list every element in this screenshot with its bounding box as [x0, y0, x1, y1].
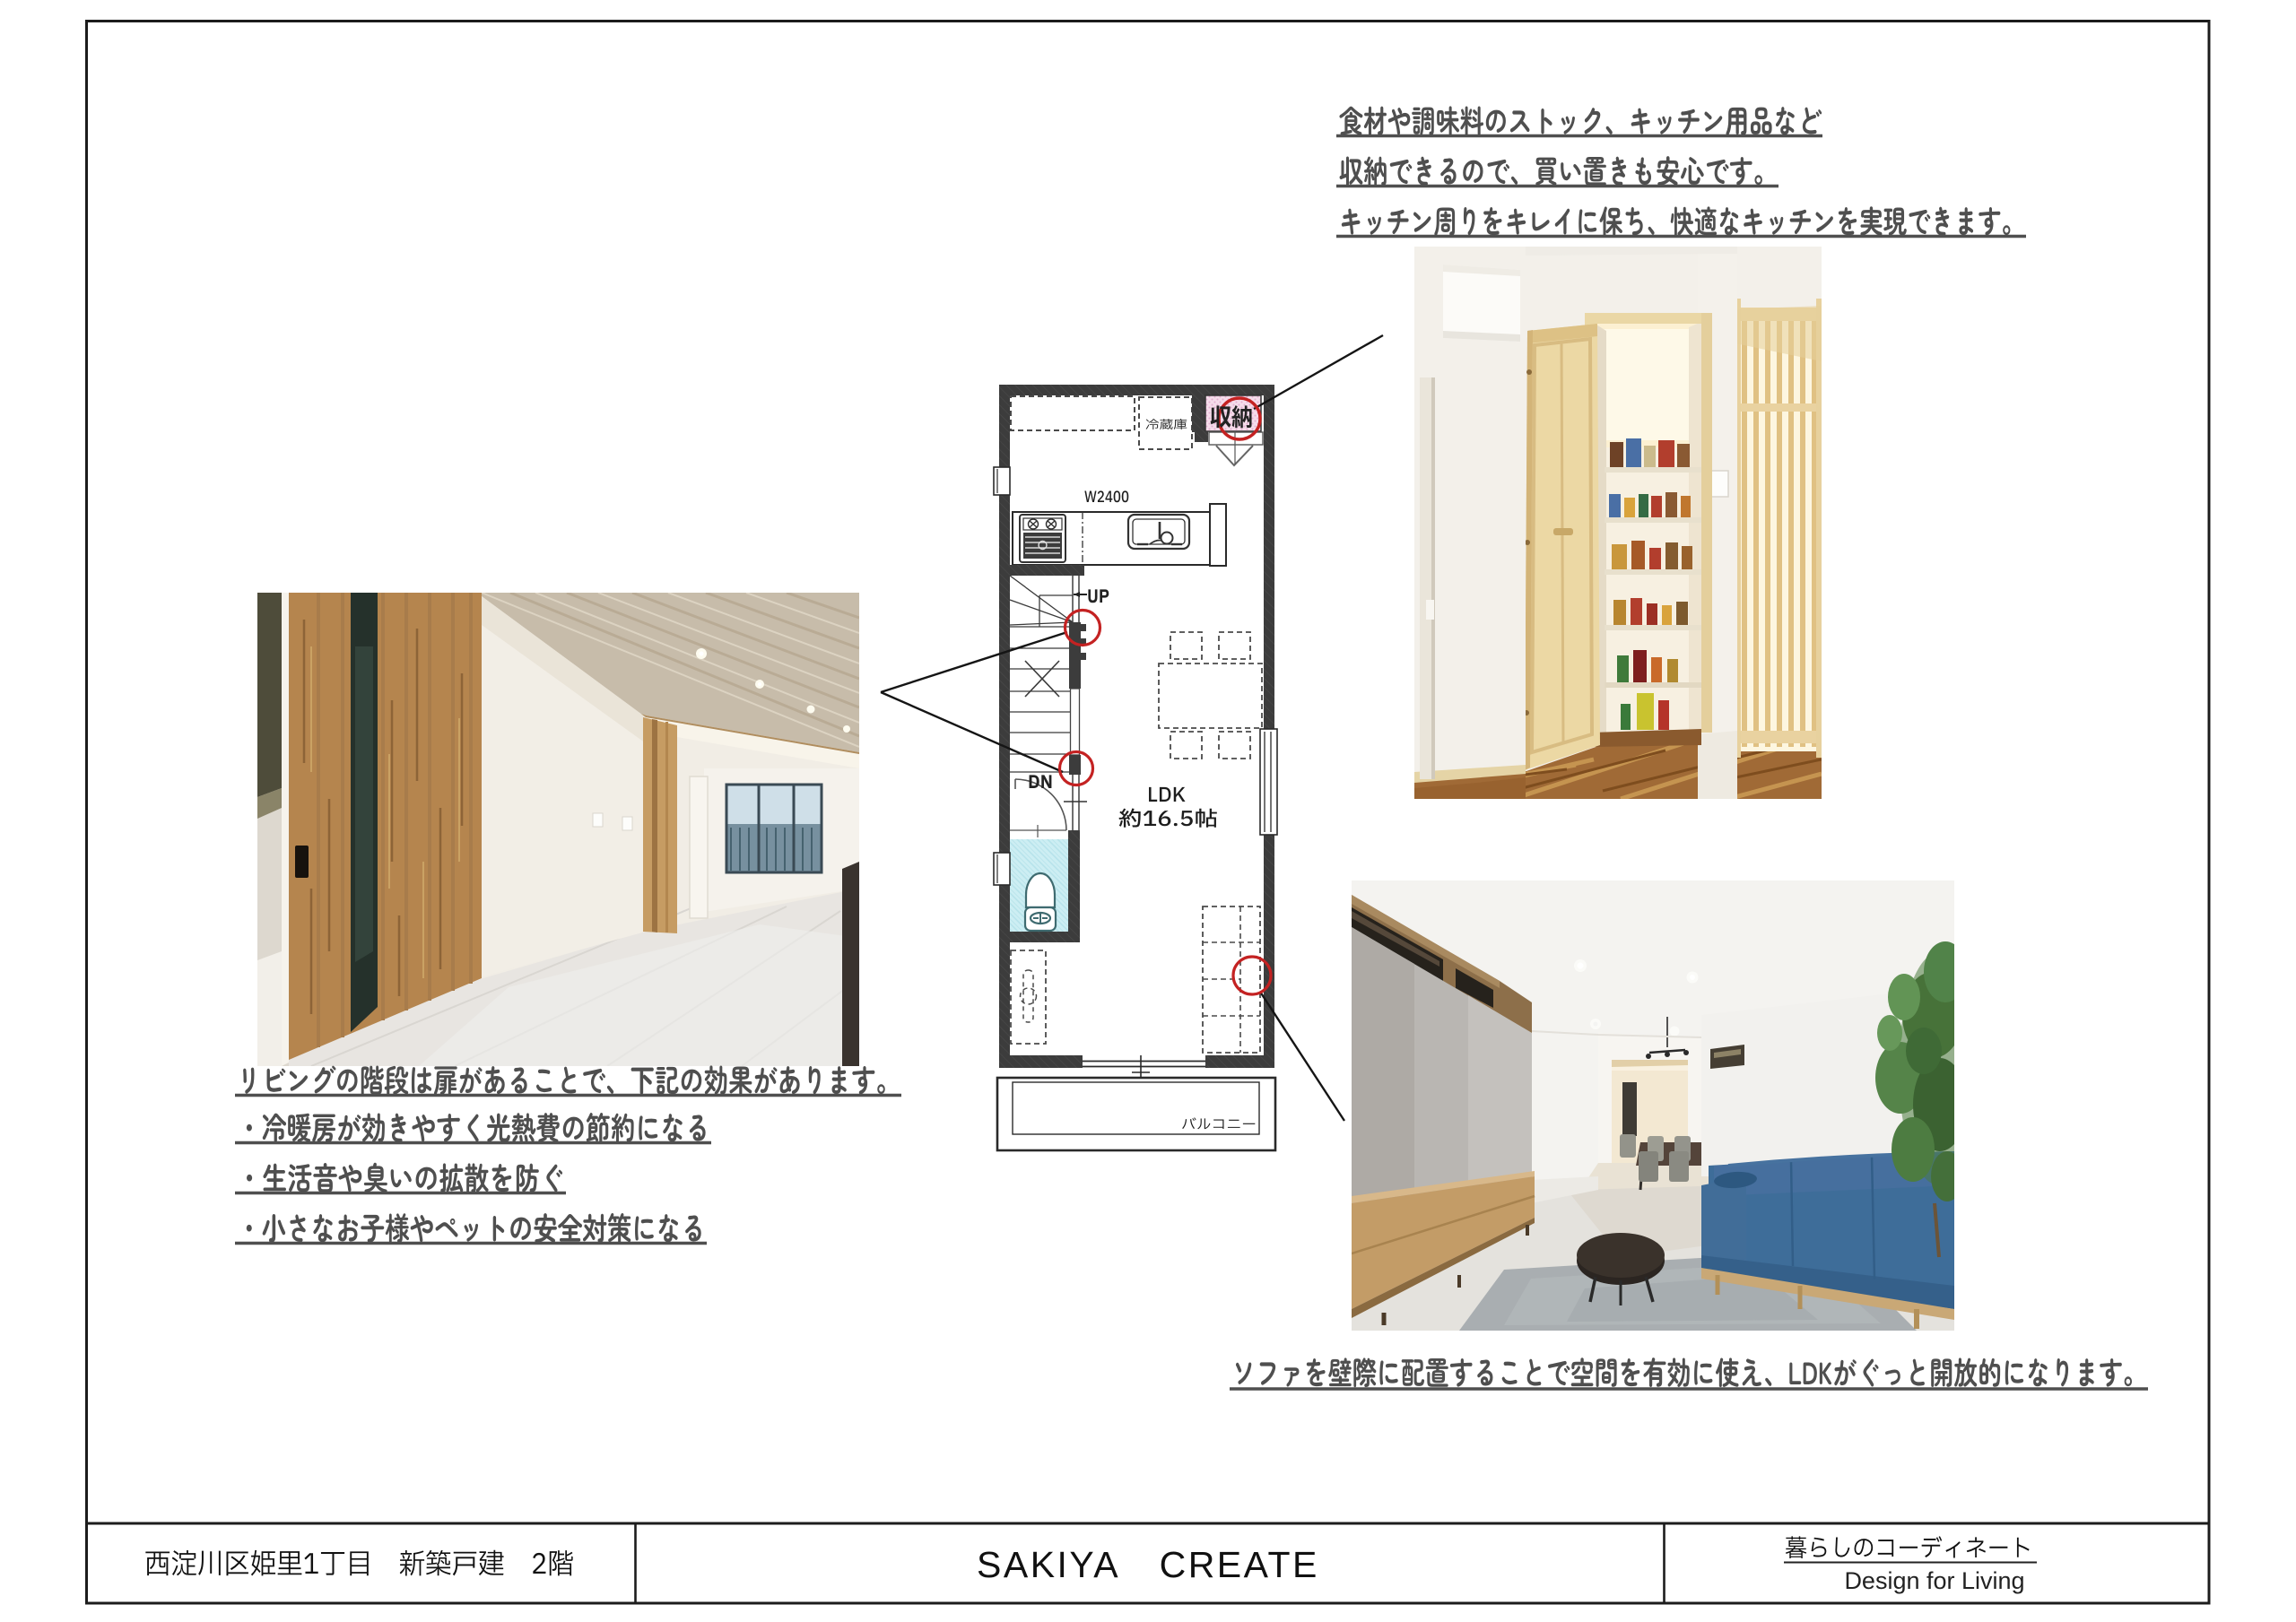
svg-text:SAKIYA CREATE: SAKIYA CREATE	[977, 1544, 1319, 1585]
svg-text:Design for Living: Design for Living	[1844, 1567, 2024, 1594]
